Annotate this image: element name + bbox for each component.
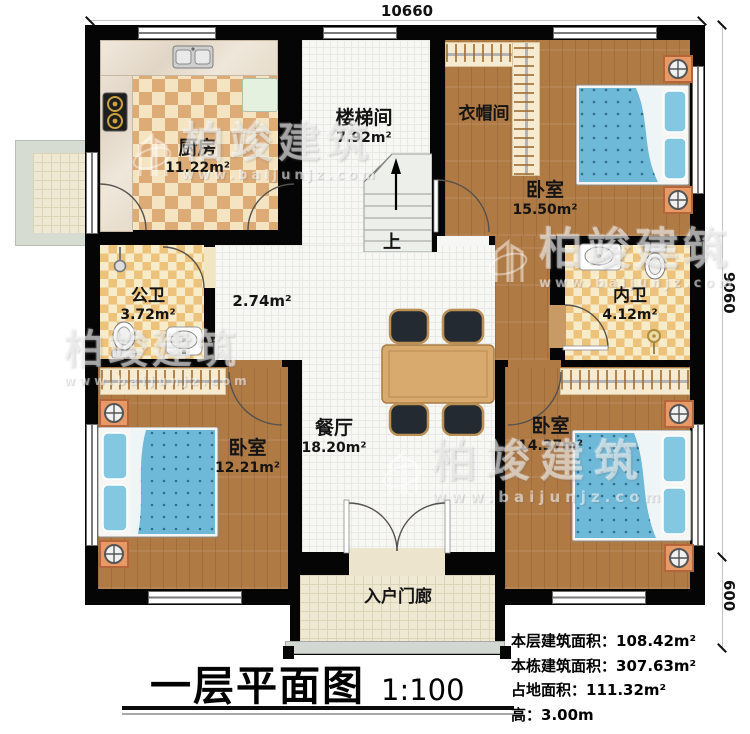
public-bath-door-arc xyxy=(163,247,204,288)
dining-room-label: 餐厅18.20m² xyxy=(288,418,380,456)
entrance-door-arc xyxy=(397,503,445,551)
door-leaf xyxy=(563,346,608,350)
building-stats: 本层建筑面积：108.42m² 本栋建筑面积：307.63m² 占地面积：111… xyxy=(511,629,696,727)
bedroom-bottom-left-label: 卧室12.21m² xyxy=(200,438,295,476)
title-underline xyxy=(122,706,514,710)
kitchen-label: 厨房11.22m² xyxy=(140,138,255,176)
title-scale: 1:100 xyxy=(381,673,465,707)
title-text: 一层平面图 xyxy=(150,652,365,712)
stat-footprint-area: 占地面积：111.32m² xyxy=(511,678,696,703)
private-bathroom-label: 内卫4.12m² xyxy=(585,287,675,323)
entrance-door-arc xyxy=(349,503,397,551)
title-underline-shadow xyxy=(122,713,514,715)
entrance-porch-label: 入户门廊 xyxy=(338,588,458,608)
door-leaf xyxy=(344,500,349,553)
stat-building-area: 本栋建筑面积：307.63m² xyxy=(511,654,696,679)
bedroom-bottom-right-label: 卧室14.37m² xyxy=(503,416,598,454)
stairwell-label: 楼梯间7.92m² xyxy=(308,108,420,146)
stat-floor-area: 本层建筑面积：108.42m² xyxy=(511,629,696,654)
kitchen-door-arc xyxy=(248,184,294,230)
drawing-title: 一层平面图 1:100 xyxy=(150,652,465,712)
floor-plan: 10660 9060 600 xyxy=(0,0,750,734)
stat-height: 高：3.00m xyxy=(511,703,696,728)
bedroom1-door-arc xyxy=(437,180,489,232)
hallway-area-label: 2.74m² xyxy=(222,293,302,310)
bedroom2-door-arc xyxy=(229,372,282,425)
bedroom-top-right-label: 卧室15.50m² xyxy=(495,180,595,218)
wall-stub xyxy=(500,646,511,659)
door-leaf xyxy=(434,180,438,232)
cloakroom-label: 衣帽间 xyxy=(442,105,526,125)
door-leaf xyxy=(445,500,450,553)
public-bathroom-label: 公卫3.72m² xyxy=(103,287,193,323)
kitchen-door-arc xyxy=(100,184,146,230)
